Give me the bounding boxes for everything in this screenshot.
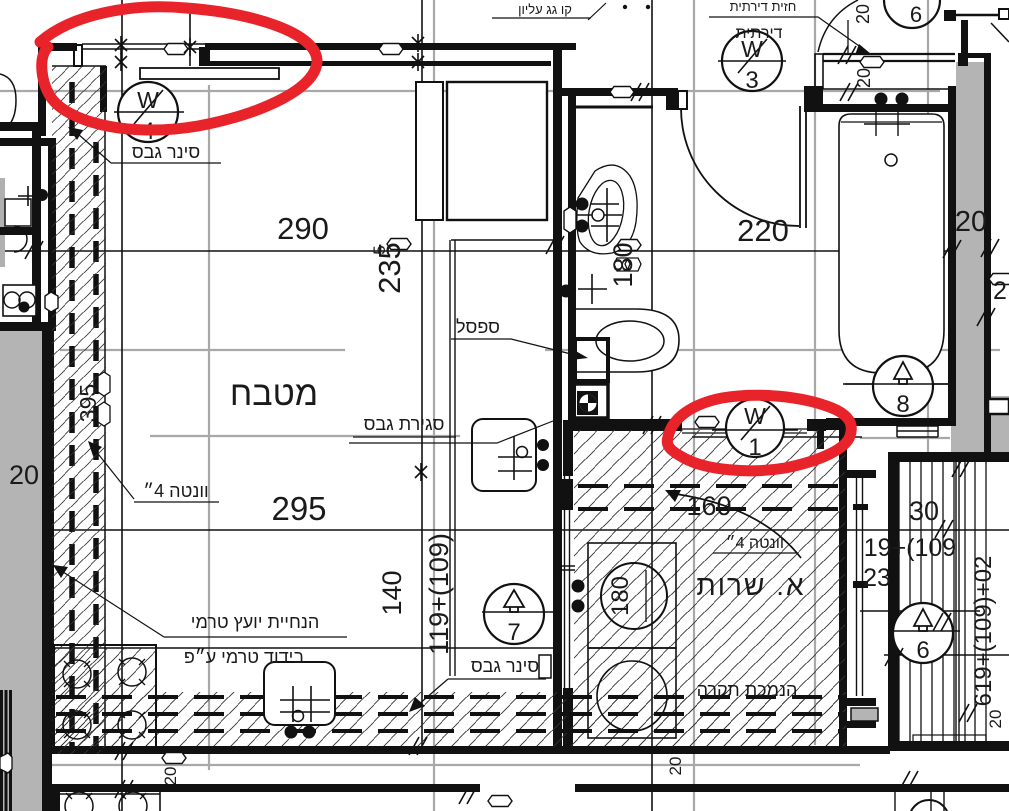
svg-text:20: 20 [955,206,987,238]
svg-text:19+(109: 19+(109 [864,534,956,562]
svg-text:הנמכת תקרה: הנמכת תקרה [697,680,798,700]
svg-text:W: W [744,403,766,429]
svg-text:סגירת גבס: סגירת גבס [364,414,445,434]
svg-text:220: 220 [737,213,789,248]
svg-text:בידוד טרמי ע״פ: בידוד טרמי ע״פ [184,647,304,667]
svg-text:דירתית: דירתית [735,25,782,42]
svg-text:חזית דירתית: חזית דירתית [730,0,797,14]
svg-text:מטבח: מטבח [230,375,318,413]
svg-text:20: 20 [161,767,180,786]
svg-text:5: 5 [370,245,389,254]
svg-text:הנחיית יועץ טרמי: הנחיית יועץ טרמי [191,612,319,632]
svg-text:א. שרות: א. שרות [696,570,805,601]
svg-text:6: 6 [916,637,929,664]
svg-text:20: 20 [986,710,1005,729]
svg-text:20: 20 [9,460,39,490]
svg-text:6: 6 [910,2,922,27]
svg-text:וונטה 4״: וונטה 4״ [143,481,208,501]
svg-text:395: 395 [75,384,101,422]
svg-text:30: 30 [909,496,939,526]
svg-text:סינר גבס: סינר גבס [132,142,200,162]
svg-text:7: 7 [507,619,520,646]
svg-text:3: 3 [745,67,758,94]
svg-text:ספסל: ספסל [456,317,500,337]
svg-text:180: 180 [607,576,634,616]
svg-text:קו גג עליון: קו גג עליון [518,2,572,17]
svg-text:סינר גבס: סינר גבס [471,656,539,676]
svg-text:619+(109)+02: 619+(109)+02 [970,556,997,707]
svg-text:W: W [137,87,159,113]
svg-text:295: 295 [271,490,326,527]
svg-text:8: 8 [896,391,909,418]
svg-text:20: 20 [666,757,685,776]
svg-text:290: 290 [277,211,329,246]
svg-text:119+(109): 119+(109) [424,533,454,655]
svg-text:20: 20 [853,4,873,24]
svg-text:160: 160 [686,491,731,521]
svg-text:140: 140 [377,570,407,615]
svg-text:וונטה 4״: וונטה 4״ [726,535,784,552]
svg-text:180: 180 [608,242,638,287]
svg-text:23: 23 [863,564,891,592]
svg-text:1: 1 [748,434,761,461]
svg-text:2: 2 [993,277,1007,305]
